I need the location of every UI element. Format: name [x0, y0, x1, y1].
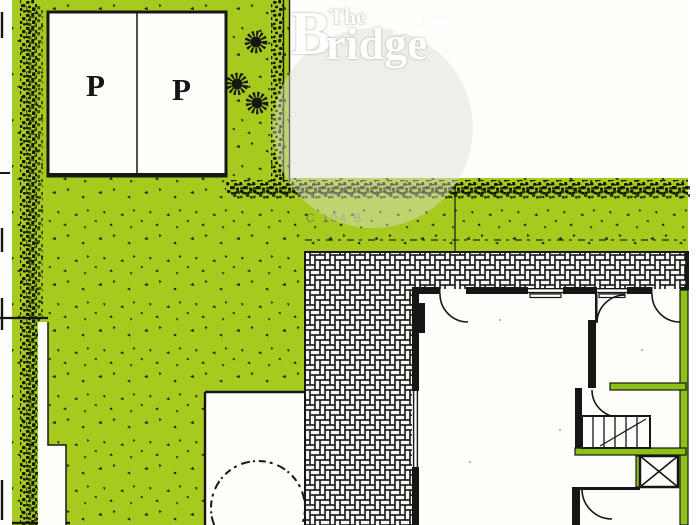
watermark-wordmark: BTheridge: [290, 4, 428, 64]
parking-stall-1-label: P: [86, 68, 105, 104]
site-plan-canvas: P P C 104 B BTheridge: [0, 0, 700, 525]
elevator-icon: [640, 456, 678, 487]
watermark-logo: BTheridge: [268, 0, 478, 256]
right-margin: [690, 0, 700, 525]
parking-stall-2-label: P: [172, 72, 191, 108]
bridge-icon: [392, 6, 456, 40]
tree-courtyard: [205, 392, 308, 525]
parking-area: [48, 12, 226, 177]
building-floor: [412, 289, 688, 525]
stairs-icon: [582, 416, 650, 448]
